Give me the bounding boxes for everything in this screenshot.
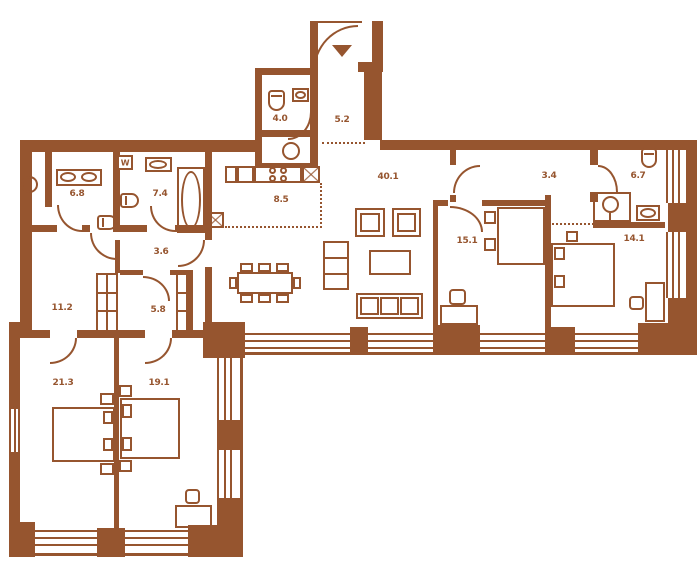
- door-arc: [57, 205, 82, 232]
- toilet-icon: [641, 148, 657, 168]
- door-arc: [178, 240, 205, 267]
- burner-icon: [280, 167, 287, 174]
- pillow-icon: [103, 438, 113, 451]
- zone-dashed-line: [320, 183, 322, 228]
- pillow-icon: [554, 275, 565, 288]
- wall-pier: [668, 298, 697, 330]
- window: [666, 232, 680, 298]
- chair-icon: [276, 263, 289, 272]
- zone-dashed-line: [322, 142, 365, 144]
- wall: [364, 62, 382, 140]
- armchair-seat-icon: [397, 213, 416, 232]
- room-label-bedroom-1: 15.1: [456, 236, 477, 246]
- room-label-entry: 5.2: [334, 115, 349, 125]
- room-label-inner-hall: 3.4: [541, 171, 556, 181]
- tv-stand-icon: [323, 241, 349, 290]
- wall-pier: [9, 522, 35, 557]
- floor-plan: W: [0, 0, 700, 583]
- stove-icon: [254, 166, 302, 183]
- chair-icon: [240, 294, 253, 303]
- pillow-icon: [554, 247, 565, 260]
- nightstand-icon: [100, 463, 114, 475]
- wall-pier: [350, 327, 368, 355]
- wall: [9, 322, 20, 409]
- chair-icon: [449, 289, 466, 305]
- wall: [482, 200, 545, 206]
- wall: [120, 270, 143, 275]
- chair-icon: [293, 277, 301, 289]
- burner-icon: [280, 175, 287, 182]
- sink-basin-icon: [81, 172, 97, 182]
- room-label-cabinet: 11.2: [51, 303, 72, 313]
- armchair-seat-icon: [360, 213, 380, 232]
- coffee-table-icon: [369, 250, 411, 275]
- toilet-icon: [120, 193, 139, 208]
- shower-head-icon: [602, 196, 619, 213]
- wall: [310, 72, 318, 168]
- wall: [82, 225, 90, 232]
- chair-icon: [276, 294, 289, 303]
- wall-pier: [668, 203, 697, 232]
- sofa-seat-icon: [400, 297, 419, 315]
- wall: [117, 225, 147, 232]
- window: [368, 333, 433, 349]
- chair-icon: [629, 296, 644, 310]
- room-label-bathroom-3: 6.7: [630, 171, 645, 181]
- door-arc: [145, 338, 172, 364]
- wall: [205, 267, 212, 330]
- sofa-seat-icon: [360, 297, 379, 315]
- chair-icon: [229, 277, 237, 289]
- wall: [450, 150, 456, 165]
- washer-label: W: [121, 159, 130, 168]
- wall: [188, 270, 193, 332]
- round-sink-icon: [21, 176, 38, 193]
- shaft-icon: [302, 166, 320, 183]
- wardrobe-icon: [96, 273, 118, 332]
- facade-line: [203, 352, 697, 355]
- window: [666, 150, 680, 203]
- wall: [20, 140, 255, 152]
- wall: [255, 130, 318, 137]
- dining-table-icon: [237, 272, 293, 294]
- desk-icon: [440, 305, 478, 325]
- desk-icon: [645, 282, 665, 322]
- window: [245, 333, 350, 349]
- room-label-kitchen: 8.5: [273, 195, 288, 205]
- sink-basin-icon: [149, 160, 167, 169]
- pillow-icon: [484, 211, 496, 224]
- chair-icon: [240, 263, 253, 272]
- window: [125, 530, 188, 546]
- pillow-icon: [103, 411, 113, 424]
- threshold-line: [318, 21, 362, 23]
- nightstand-icon: [119, 460, 132, 472]
- wall: [20, 330, 50, 338]
- door-arc: [450, 206, 483, 232]
- wall: [205, 232, 212, 240]
- window: [33, 530, 97, 546]
- window: [217, 450, 232, 498]
- zone-dashed-line: [548, 223, 598, 225]
- wardrobe-icon: [176, 273, 188, 332]
- sink-basin-icon: [295, 91, 306, 99]
- chair-icon: [185, 489, 200, 504]
- chair-icon: [258, 263, 271, 272]
- pillow-icon: [484, 238, 496, 251]
- entrance-arrow-icon: [332, 45, 352, 57]
- bed-icon: [497, 207, 545, 265]
- kitchen-sink-icon: [237, 166, 254, 183]
- wall: [9, 452, 20, 525]
- room-label-wardrobe: 5.8: [150, 305, 165, 315]
- door-arc: [90, 233, 117, 260]
- room-label-bedroom-4: 19.1: [148, 378, 169, 388]
- counter-icon: [225, 166, 237, 183]
- wall-pier: [433, 325, 480, 355]
- shower-stem: [609, 213, 611, 222]
- window: [9, 409, 20, 452]
- wall: [590, 150, 598, 165]
- nightstand-icon: [119, 385, 132, 397]
- nightstand-icon: [566, 231, 578, 242]
- room-label-wc: 4.0: [272, 114, 287, 124]
- chair-icon: [258, 294, 271, 303]
- shelf-line: [325, 257, 347, 259]
- sink-basin-icon: [60, 172, 76, 182]
- wall: [593, 222, 665, 228]
- toilet-icon: [268, 90, 285, 111]
- door-arc: [143, 276, 170, 301]
- sofa-seat-icon: [380, 297, 399, 315]
- facade-line: [18, 553, 212, 556]
- wall: [255, 68, 262, 165]
- shaft-icon: [207, 212, 224, 228]
- room-label-bathroom-2: 7.4: [152, 189, 167, 199]
- window: [217, 358, 232, 420]
- desk-icon: [175, 505, 212, 528]
- wall: [45, 152, 52, 207]
- bathtub-icon: [177, 167, 205, 233]
- wall: [450, 195, 456, 202]
- burner-icon: [269, 175, 276, 182]
- zone-dashed-line: [225, 226, 322, 228]
- room-label-living: 40.1: [377, 172, 398, 182]
- sink-basin-icon: [640, 208, 656, 218]
- shelf-line: [325, 273, 347, 275]
- wall: [20, 225, 57, 232]
- door-arc: [453, 165, 480, 193]
- burner-icon: [269, 167, 276, 174]
- wall: [20, 140, 32, 330]
- facade-line: [240, 355, 243, 528]
- pillow-icon: [122, 437, 132, 451]
- toilet-icon: [97, 215, 117, 230]
- wall: [255, 68, 318, 75]
- room-label-bedroom-3: 21.3: [52, 378, 73, 388]
- door-arc: [150, 206, 175, 232]
- room-label-bathroom-1: 6.8: [69, 189, 84, 199]
- room-label-bedroom-2: 14.1: [623, 234, 644, 244]
- pillow-icon: [122, 404, 132, 418]
- room-label-corridor: 3.6: [153, 247, 168, 257]
- round-sink-icon: [282, 142, 300, 160]
- window: [480, 333, 545, 349]
- window: [575, 333, 638, 349]
- door-arc: [50, 338, 77, 364]
- wall-pier: [545, 327, 575, 355]
- nightstand-icon: [100, 393, 114, 405]
- door-arc: [598, 165, 618, 192]
- wall: [433, 200, 438, 330]
